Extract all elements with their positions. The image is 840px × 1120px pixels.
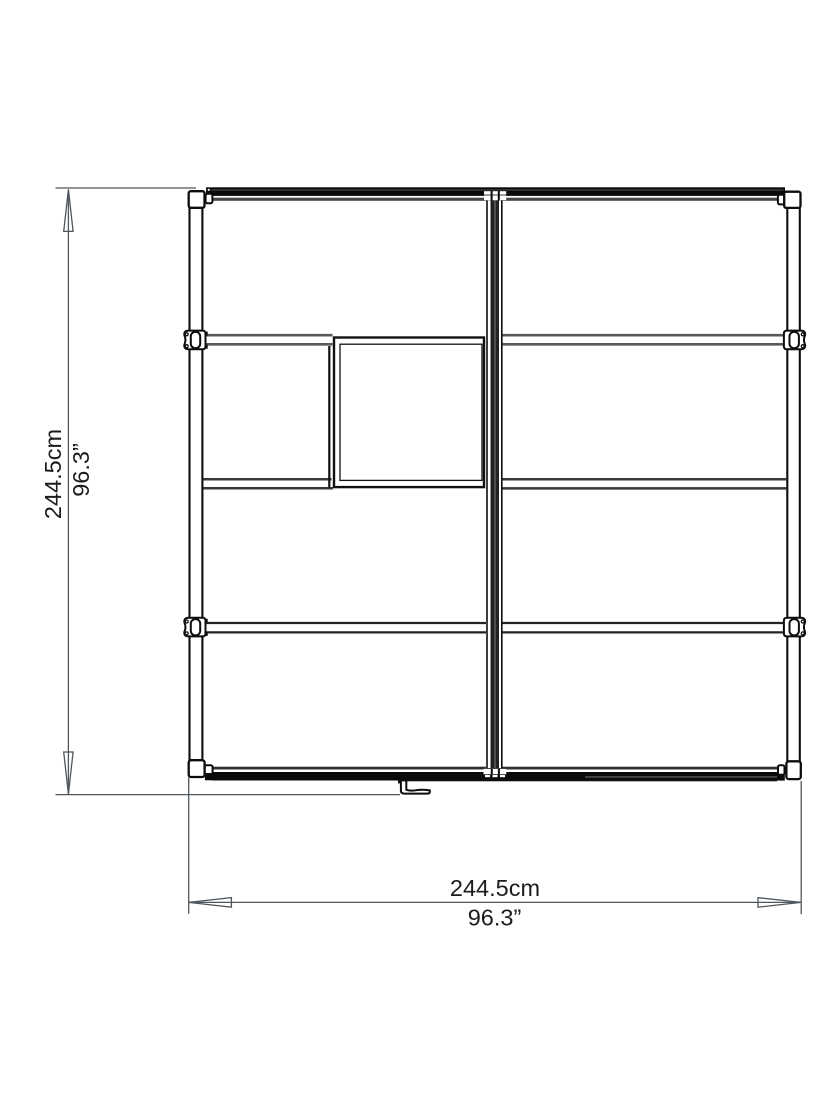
svg-text:244.5cm: 244.5cm	[450, 875, 540, 901]
svg-text:244.5cm: 244.5cm	[40, 429, 66, 519]
svg-text:96.3”: 96.3”	[68, 443, 94, 497]
svg-text:96.3”: 96.3”	[468, 905, 522, 931]
